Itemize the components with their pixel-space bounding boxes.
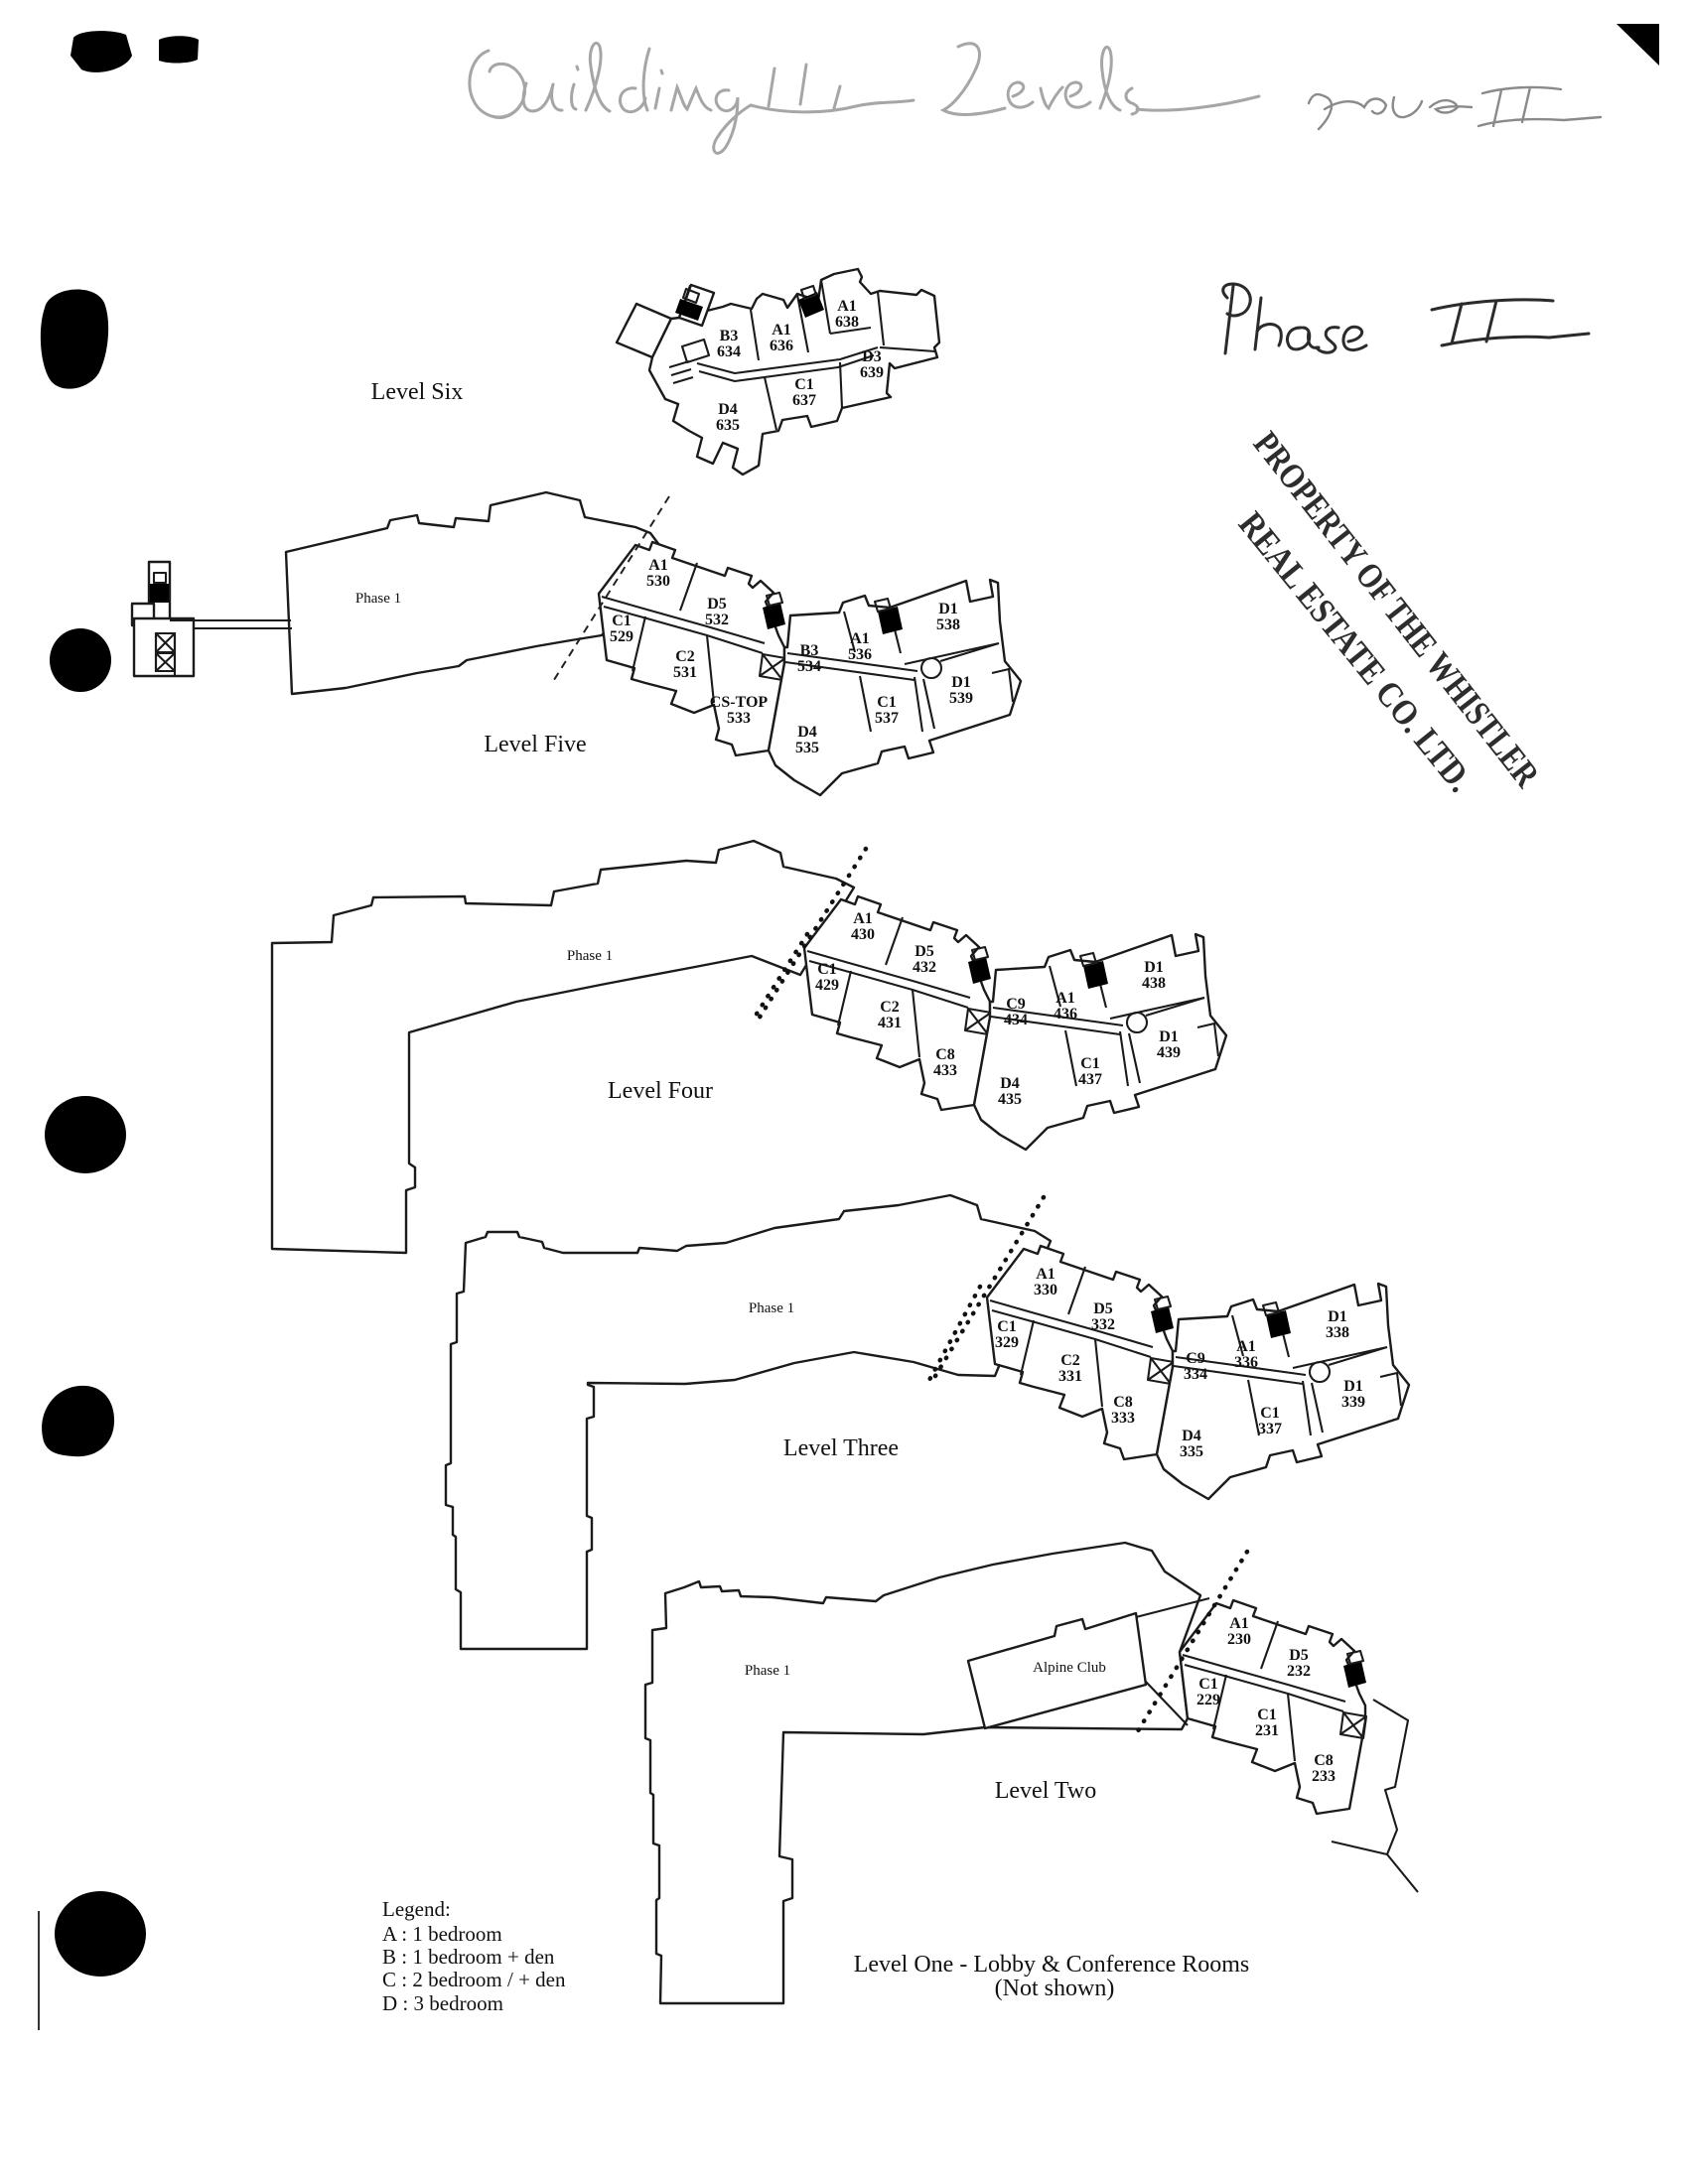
svg-text:C1329: C1329 — [995, 1318, 1019, 1351]
svg-text:C9334: C9334 — [1184, 1350, 1207, 1383]
svg-text:C1529: C1529 — [610, 613, 633, 645]
svg-text:C2431: C2431 — [878, 999, 902, 1031]
svg-text:C1231: C1231 — [1255, 1706, 1279, 1739]
svg-text:D1539: D1539 — [949, 674, 973, 707]
svg-text:B3634: B3634 — [717, 328, 741, 360]
svg-text:D3639: D3639 — [860, 348, 884, 381]
svg-text:Alpine Club: Alpine Club — [1033, 1660, 1106, 1676]
svg-text:D1439: D1439 — [1157, 1028, 1181, 1061]
svg-text:Level Three: Level Three — [783, 1435, 899, 1461]
svg-text:C1537: C1537 — [875, 694, 899, 727]
svg-text:D4535: D4535 — [795, 724, 819, 756]
svg-text:C1429: C1429 — [815, 961, 839, 994]
svg-text:C9434: C9434 — [1004, 996, 1028, 1028]
svg-text:C1437: C1437 — [1078, 1055, 1102, 1088]
svg-text:A1636: A1636 — [770, 322, 793, 354]
svg-text:C8433: C8433 — [933, 1046, 957, 1079]
svg-text:D1338: D1338 — [1326, 1308, 1349, 1341]
svg-text:B3534: B3534 — [797, 642, 821, 675]
svg-text:A1430: A1430 — [851, 910, 875, 943]
svg-text:Level Two: Level Two — [995, 1778, 1097, 1804]
svg-text:A : 1 bedroom: A : 1 bedroom — [382, 1922, 502, 1946]
svg-text:C2531: C2531 — [673, 648, 697, 681]
svg-text:Level One - Lobby & Conference: Level One - Lobby & Conference Rooms — [854, 1952, 1250, 1978]
svg-text:Level Four: Level Four — [608, 1078, 713, 1104]
svg-text:A1330: A1330 — [1034, 1266, 1057, 1298]
svg-text:Level Six: Level Six — [371, 379, 464, 405]
svg-text:D : 3 bedroom: D : 3 bedroom — [382, 1991, 503, 2015]
svg-text:D5232: D5232 — [1287, 1647, 1311, 1680]
svg-text:A1436: A1436 — [1054, 990, 1077, 1023]
svg-text:A1336: A1336 — [1234, 1338, 1258, 1371]
svg-text:D1339: D1339 — [1341, 1378, 1365, 1411]
svg-text:D1438: D1438 — [1142, 959, 1166, 992]
svg-text:(Not shown): (Not shown) — [995, 1976, 1115, 2001]
svg-text:Phase 1: Phase 1 — [745, 1663, 790, 1679]
svg-text:Phase 1: Phase 1 — [567, 948, 613, 964]
svg-text:Level Five: Level Five — [484, 732, 586, 757]
svg-text:A1230: A1230 — [1227, 1615, 1251, 1648]
svg-text:D4335: D4335 — [1180, 1428, 1203, 1460]
svg-text:C8333: C8333 — [1111, 1394, 1135, 1427]
svg-text:A1638: A1638 — [835, 298, 859, 331]
svg-text:C1637: C1637 — [792, 376, 816, 409]
svg-text:PROPERTY OF THE WHISTLER: PROPERTY OF THE WHISTLER — [1246, 424, 1548, 795]
svg-text:D5432: D5432 — [913, 943, 936, 976]
svg-text:C8233: C8233 — [1312, 1752, 1336, 1785]
svg-text:D5332: D5332 — [1091, 1300, 1115, 1333]
svg-text:C2331: C2331 — [1058, 1352, 1082, 1385]
svg-text:D5532: D5532 — [705, 596, 729, 628]
svg-text:A1536: A1536 — [848, 630, 872, 663]
svg-text:Phase 1: Phase 1 — [749, 1300, 794, 1316]
svg-text:C : 2 bedroom / + den: C : 2 bedroom / + den — [382, 1968, 566, 1991]
svg-text:C1337: C1337 — [1258, 1405, 1282, 1437]
svg-text:Legend:: Legend: — [382, 1897, 451, 1921]
svg-text:Phase 1: Phase 1 — [355, 591, 401, 607]
svg-text:D4635: D4635 — [716, 401, 740, 434]
svg-text:A1530: A1530 — [646, 557, 670, 590]
svg-text:D4435: D4435 — [998, 1075, 1022, 1108]
svg-text:B : 1 bedroom + den: B : 1 bedroom + den — [382, 1945, 555, 1969]
svg-text:D1538: D1538 — [936, 601, 960, 633]
svg-text:C1229: C1229 — [1196, 1676, 1220, 1708]
